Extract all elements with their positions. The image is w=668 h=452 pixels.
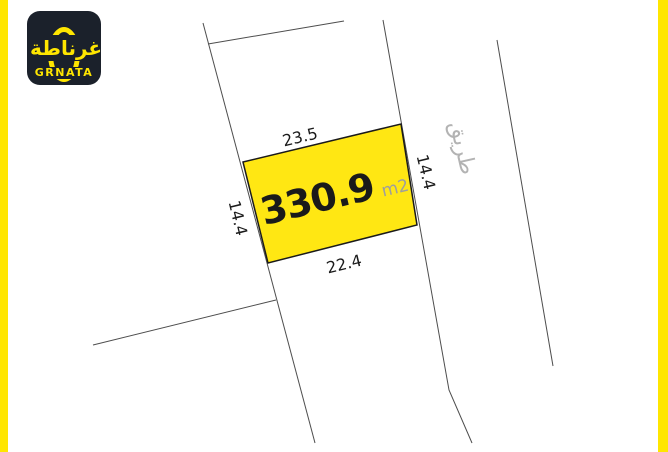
plot-area-unit: m2 [380, 176, 411, 202]
road-edge-line-outer [497, 40, 553, 366]
logo-text-block: غرناطة GRNATA [27, 35, 101, 80]
logo-arabic-wordmark: غرناطة [27, 35, 101, 61]
boundary-line-top [208, 21, 344, 44]
land-plot-diagram: 330.9 m2 23.5 22.4 14.4 14.4 طريق غرناطة… [0, 0, 668, 452]
boundary-line-southwest [93, 300, 276, 345]
road-edge-line-inner [383, 20, 472, 443]
grnata-logo: غرناطة GRNATA [27, 11, 101, 85]
logo-latin-wordmark: GRNATA [33, 67, 96, 79]
